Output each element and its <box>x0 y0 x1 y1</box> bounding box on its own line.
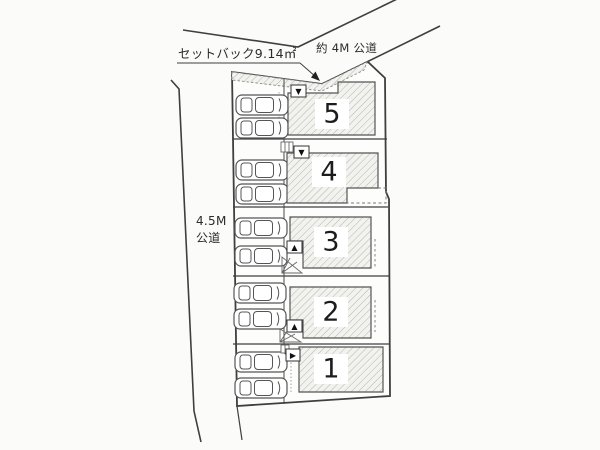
lot-2-number-label: 2 <box>322 297 339 328</box>
car-icon <box>235 246 287 266</box>
site-plan: 5 4 3 2 1 ▼ ▼ ▲ ▲ ▶ セットバック9.14㎡ 約 4M 公道 <box>0 0 600 450</box>
road-4m-far-edge-line <box>183 0 424 47</box>
left-road-label-line2: 公道 <box>196 231 221 245</box>
car-icon <box>234 283 286 303</box>
arrowhead-icon <box>311 72 320 82</box>
car-icon <box>236 184 288 204</box>
car-icon <box>236 118 288 138</box>
left-road-label-line1: 4.5M <box>196 214 227 228</box>
lot-4-number-label: 4 <box>320 157 337 188</box>
lot-2-entrance-marker: ▲ <box>287 320 302 332</box>
setback-label: セットバック9.14㎡ <box>178 46 297 61</box>
lot-1-number: 1 <box>314 354 348 385</box>
car-icon <box>236 95 288 115</box>
car-icon <box>235 378 287 398</box>
entrance-down-icon: ▼ <box>298 148 305 157</box>
lot-3-entrance-marker: ▲ <box>287 241 302 253</box>
car-icon <box>236 160 288 180</box>
lot-3-number: 3 <box>314 227 348 258</box>
lot-4-entrance-marker: ▼ <box>294 146 309 158</box>
road-45m-edge-line <box>171 80 201 442</box>
top-road-label: 約 4M 公道 <box>316 41 377 55</box>
entrance-right-icon: ▶ <box>290 351 297 360</box>
entrance-up-icon: ▲ <box>291 243 298 252</box>
lot-4-porch-icon <box>281 142 293 152</box>
entrance-down-icon: ▼ <box>295 87 302 96</box>
lot-3-number-label: 3 <box>322 227 339 258</box>
lot-5-entrance-marker: ▼ <box>291 85 306 97</box>
lot-1-number-label: 1 <box>322 354 339 385</box>
lot-1-entrance-marker: ▶ <box>286 349 300 361</box>
lot-5-number-label: 5 <box>323 99 340 130</box>
car-icon <box>234 309 286 329</box>
car-icon <box>235 352 287 372</box>
entrance-up-icon: ▲ <box>291 322 298 331</box>
lot-5-number: 5 <box>315 99 349 130</box>
boundary-extension-line <box>237 406 242 440</box>
site-plan-svg: 5 4 3 2 1 ▼ ▼ ▲ ▲ ▶ セットバック9.14㎡ 約 4M 公道 <box>0 0 600 450</box>
car-icon <box>235 218 287 238</box>
lot-4-number: 4 <box>312 157 346 188</box>
lot-2-number: 2 <box>314 297 348 328</box>
